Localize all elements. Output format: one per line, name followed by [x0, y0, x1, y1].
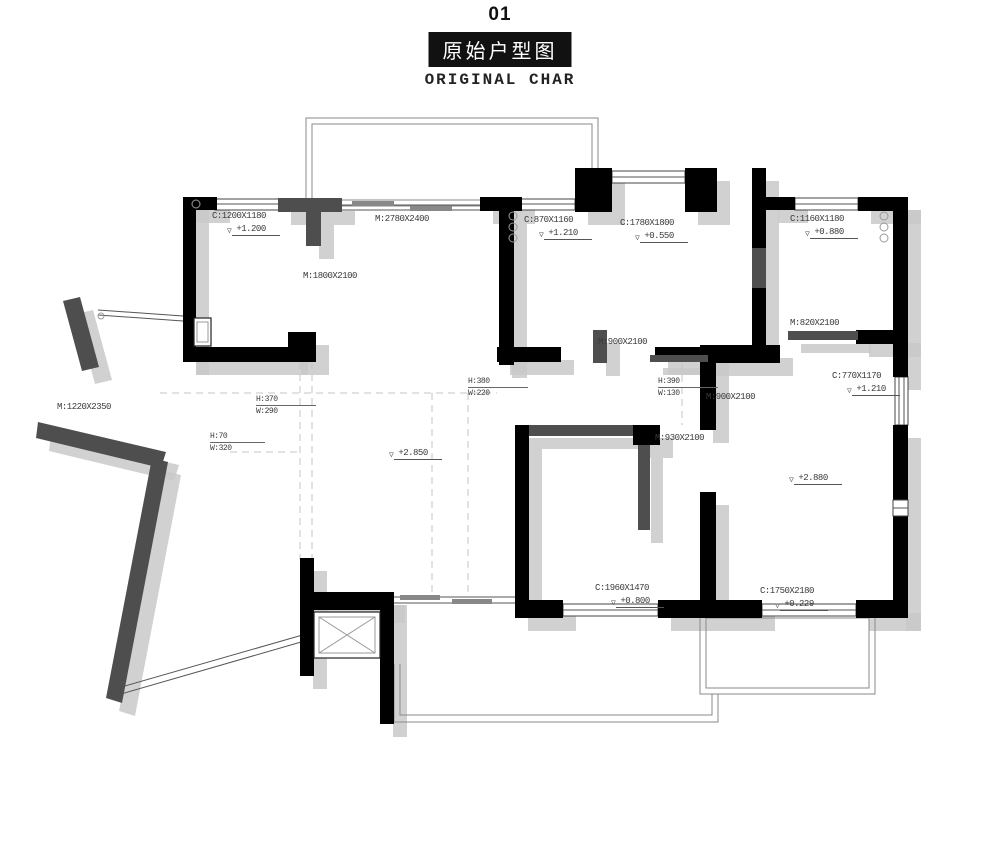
walls-shadow-layer — [49, 181, 921, 737]
floor-plan-page: 01 原始户型图 ORIGINAL CHAR — [0, 0, 1000, 851]
window-c1780 — [612, 171, 685, 183]
sliding-door-living — [393, 595, 520, 604]
window-c1200 — [215, 199, 280, 210]
dashed-reference-lines — [160, 362, 705, 597]
elevator-shaft — [314, 612, 380, 658]
top-balcony-outline — [306, 118, 598, 206]
window-right-small — [893, 500, 908, 516]
railing-left — [98, 310, 183, 321]
window-c1160 — [795, 198, 858, 210]
window-c770 — [895, 377, 908, 425]
cabinet-symbol — [194, 318, 211, 346]
window-c1750 — [762, 604, 856, 616]
window-c870 — [520, 199, 575, 210]
floor-plan-drawing — [0, 0, 1000, 851]
bottom-terrace-outline — [394, 664, 718, 722]
window-c1960 — [563, 604, 658, 616]
